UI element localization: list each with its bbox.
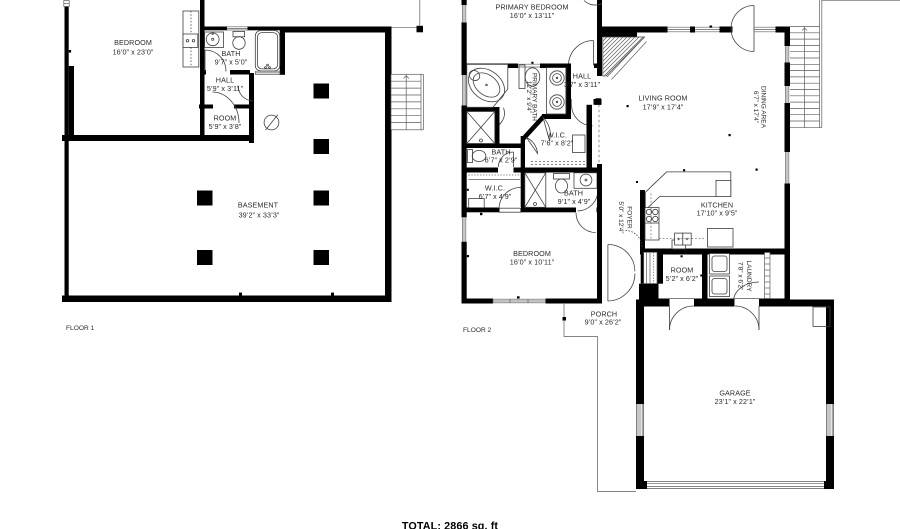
svg-text:6’7” x 4’9”: 6’7” x 4’9” (479, 192, 512, 201)
svg-text:17’9” x 17’4”: 17’9” x 17’4” (643, 103, 684, 112)
svg-text:17’10” x 9’5”: 17’10” x 9’5” (697, 209, 738, 218)
svg-text:9’1” x 4’9”: 9’1” x 4’9” (558, 197, 591, 206)
svg-text:12’2” x 9’4”: 12’2” x 9’4” (525, 81, 532, 113)
svg-text:5’9” x 3’8”: 5’9” x 3’8” (209, 122, 242, 131)
svg-text:BASEMENT: BASEMENT (238, 201, 279, 210)
svg-text:3’7” x 3’11”: 3’7” x 3’11” (564, 80, 601, 89)
svg-text:16’0” x 13’11”: 16’0” x 13’11” (510, 11, 555, 20)
svg-text:39’2” x 33’3”: 39’2” x 33’3” (239, 211, 280, 220)
svg-text:5’0” x 12’4”: 5’0” x 12’4” (617, 201, 624, 233)
svg-text:6’7” x 17’4”: 6’7” x 17’4” (752, 91, 759, 123)
svg-text:7’6” x 8’2”: 7’6” x 8’2” (541, 139, 574, 148)
svg-text:TOTAL: 2866 sq. ft: TOTAL: 2866 sq. ft (402, 521, 498, 529)
svg-text:BEDROOM: BEDROOM (114, 38, 152, 47)
svg-text:23’1” x 22’1”: 23’1” x 22’1” (715, 397, 756, 406)
svg-text:DINING AREA: DINING AREA (760, 86, 767, 129)
svg-text:6’7” x 2’9”: 6’7” x 2’9” (485, 156, 518, 165)
svg-text:FLOOR 1: FLOOR 1 (66, 325, 95, 332)
svg-text:FLOOR 2: FLOOR 2 (463, 327, 492, 334)
svg-text:7’8” x 6’2”: 7’8” x 6’2” (737, 262, 744, 291)
svg-text:9’0” x 26’2”: 9’0” x 26’2” (585, 318, 622, 327)
svg-text:9’7” x 5’0”: 9’7” x 5’0” (215, 58, 248, 67)
svg-text:16’0” x 10’11”: 16’0” x 10’11” (510, 258, 555, 267)
svg-text:16’0” x 23’0”: 16’0” x 23’0” (113, 48, 154, 57)
svg-text:5’9” x 3’11”: 5’9” x 3’11” (207, 84, 244, 93)
svg-text:LAUNDRY: LAUNDRY (745, 261, 752, 293)
svg-text:FOYER: FOYER (626, 206, 633, 229)
svg-text:5’2” x 6’2”: 5’2” x 6’2” (666, 274, 699, 283)
svg-text:LIVING ROOM: LIVING ROOM (638, 94, 687, 103)
